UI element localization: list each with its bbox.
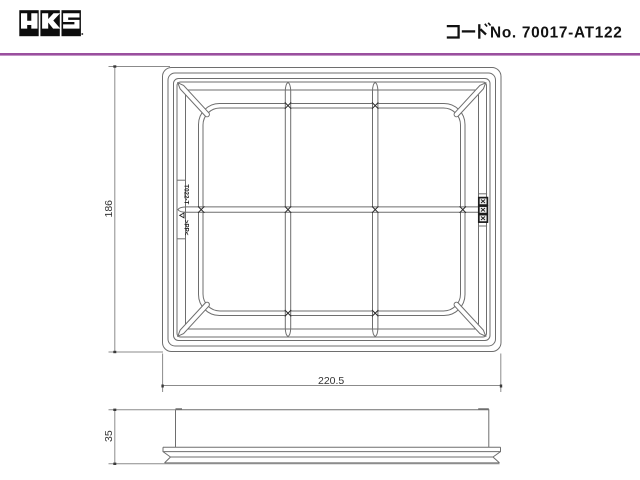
svg-text:No. 70017-AT122: No. 70017-AT122 [490, 24, 623, 41]
svg-text:>PP<: >PP< [182, 220, 189, 236]
svg-text:186: 186 [103, 200, 115, 218]
svg-text:35: 35 [103, 430, 115, 442]
svg-text:T022-T: T022-T [182, 184, 189, 204]
svg-text:220.5: 220.5 [318, 375, 344, 387]
